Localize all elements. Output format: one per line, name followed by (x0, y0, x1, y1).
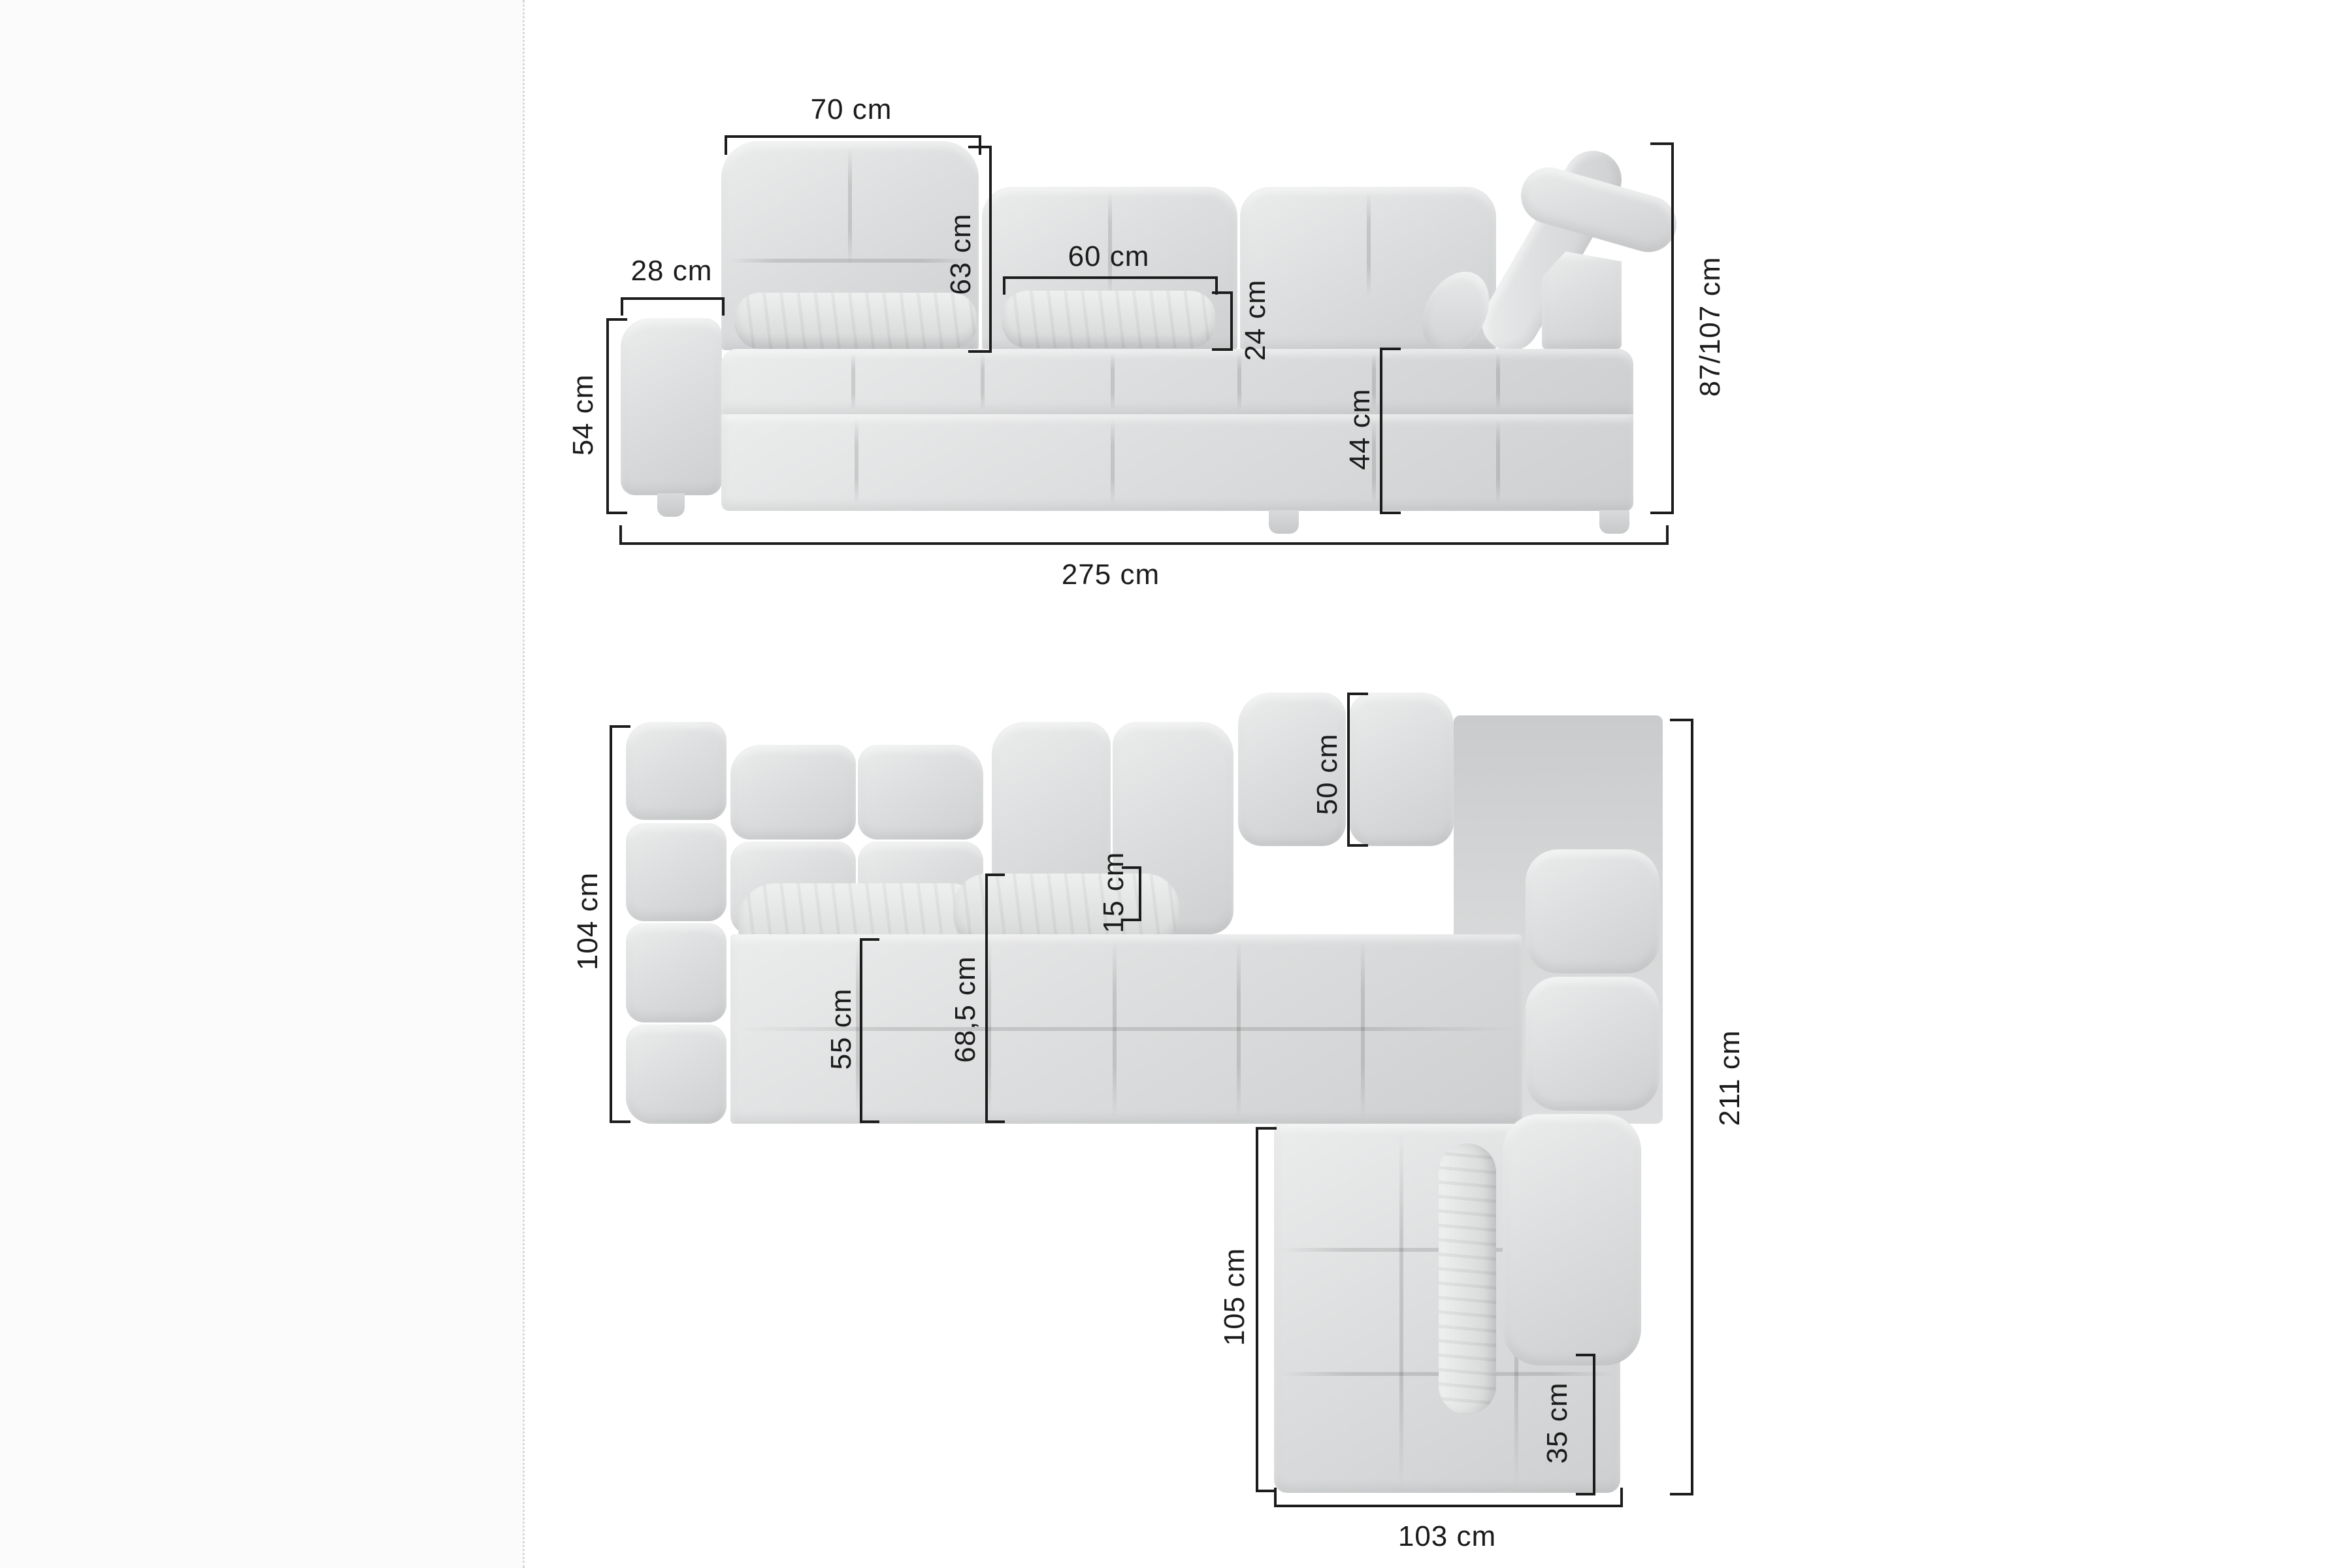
base-seam (855, 419, 858, 504)
dim-depth-label: 104 cm (571, 810, 605, 1032)
chaise-seam (1399, 1129, 1403, 1488)
seat-seam (1496, 353, 1500, 410)
front-lumbar-pillow-left (735, 293, 977, 349)
top-armrest-cushion (626, 722, 727, 820)
dim-back-height-label: 63 cm (944, 143, 978, 365)
top-corner-back-cushion (1526, 849, 1659, 973)
dim-chaise-width-label: 103 cm (1369, 1520, 1526, 1554)
dim-pillow-width-bracket (1003, 276, 1218, 295)
dim-seat-height-label: 44 cm (1343, 318, 1377, 540)
dim-corner-seat-width-bracket (1576, 1354, 1595, 1495)
dim-armrest-width-bracket (621, 297, 725, 316)
dim-armrest-height-label: 54 cm (566, 304, 600, 526)
front-armrest (621, 318, 722, 495)
front-seat-row-upper (721, 349, 1633, 414)
dim-depth-bracket (610, 725, 630, 1123)
dim-back-width-bracket (725, 135, 981, 155)
dim-pillow-height-label: 24 cm (1239, 209, 1273, 431)
dim-total-length-label: 211 cm (1713, 967, 1747, 1189)
headrest-pad (1542, 252, 1622, 350)
front-elevation-view: 70 cm 28 cm 63 cm 60 cm 24 cm 54 cm 44 c… (562, 91, 1790, 614)
backrest-seam (728, 259, 972, 263)
sofa-dimension-sheet: { "front_view": { "labels": { "back_widt… (0, 0, 2352, 1568)
seat-seam (851, 353, 855, 410)
dim-total-length-bracket (1670, 719, 1693, 1495)
base-seam (1111, 419, 1115, 504)
page-left-margin (0, 0, 525, 1568)
seat-seam (1361, 939, 1365, 1119)
top-armrest-cushion (626, 823, 727, 921)
front-lumbar-pillow-right (1002, 291, 1215, 348)
dim-pillow-height-bracket (1212, 291, 1233, 351)
seat-seam (1237, 939, 1241, 1119)
dim-pillow-depth-label: 15 cm (1097, 781, 1131, 1004)
dim-total-width-label: 275 cm (1032, 558, 1189, 592)
top-armrest-cushion (626, 1024, 727, 1124)
backrest-seam (848, 148, 852, 265)
dim-armrest-width-label: 28 cm (593, 254, 750, 288)
dim-seat-depth-label: 68,5 cm (949, 898, 983, 1120)
top-bolster-pillow (1439, 1143, 1496, 1414)
dim-seat-width-bracket (860, 938, 879, 1123)
front-seat-base (721, 414, 1633, 511)
top-back-cushion (730, 745, 856, 840)
seat-seam (981, 353, 985, 410)
dim-back-width-label: 70 cm (773, 93, 930, 127)
dim-total-height-bracket (1650, 142, 1674, 514)
base-seam (1496, 419, 1500, 504)
top-corner-back-cushion (1526, 977, 1659, 1111)
dim-total-height-label: 87/107 cm (1693, 216, 1727, 438)
backrest-seam (1367, 192, 1371, 297)
dim-armrest-height-bracket (606, 318, 627, 514)
dim-backrest-depth-bracket (1347, 693, 1368, 847)
dim-total-width-bracket (619, 525, 1669, 545)
top-plan-view: 104 cm 50 cm 15 cm 55 cm 68,5 cm 105 cm … (562, 666, 1816, 1568)
top-armrest-cushion (626, 923, 727, 1022)
top-back-cushion (858, 745, 983, 840)
dim-seat-depth-bracket (985, 874, 1005, 1123)
seat-seam (1111, 353, 1115, 410)
dim-seat-height-bracket (1380, 348, 1401, 514)
dim-corner-seat-width-label: 35 cm (1541, 1312, 1575, 1534)
dim-chaise-length-bracket (1256, 1127, 1277, 1492)
dim-pillow-width-label: 60 cm (1030, 240, 1187, 274)
dim-chaise-length-label: 105 cm (1218, 1186, 1252, 1408)
front-armrest-foot (657, 493, 685, 517)
dim-seat-width-label: 55 cm (825, 918, 858, 1140)
dim-backrest-depth-label: 50 cm (1311, 663, 1345, 885)
